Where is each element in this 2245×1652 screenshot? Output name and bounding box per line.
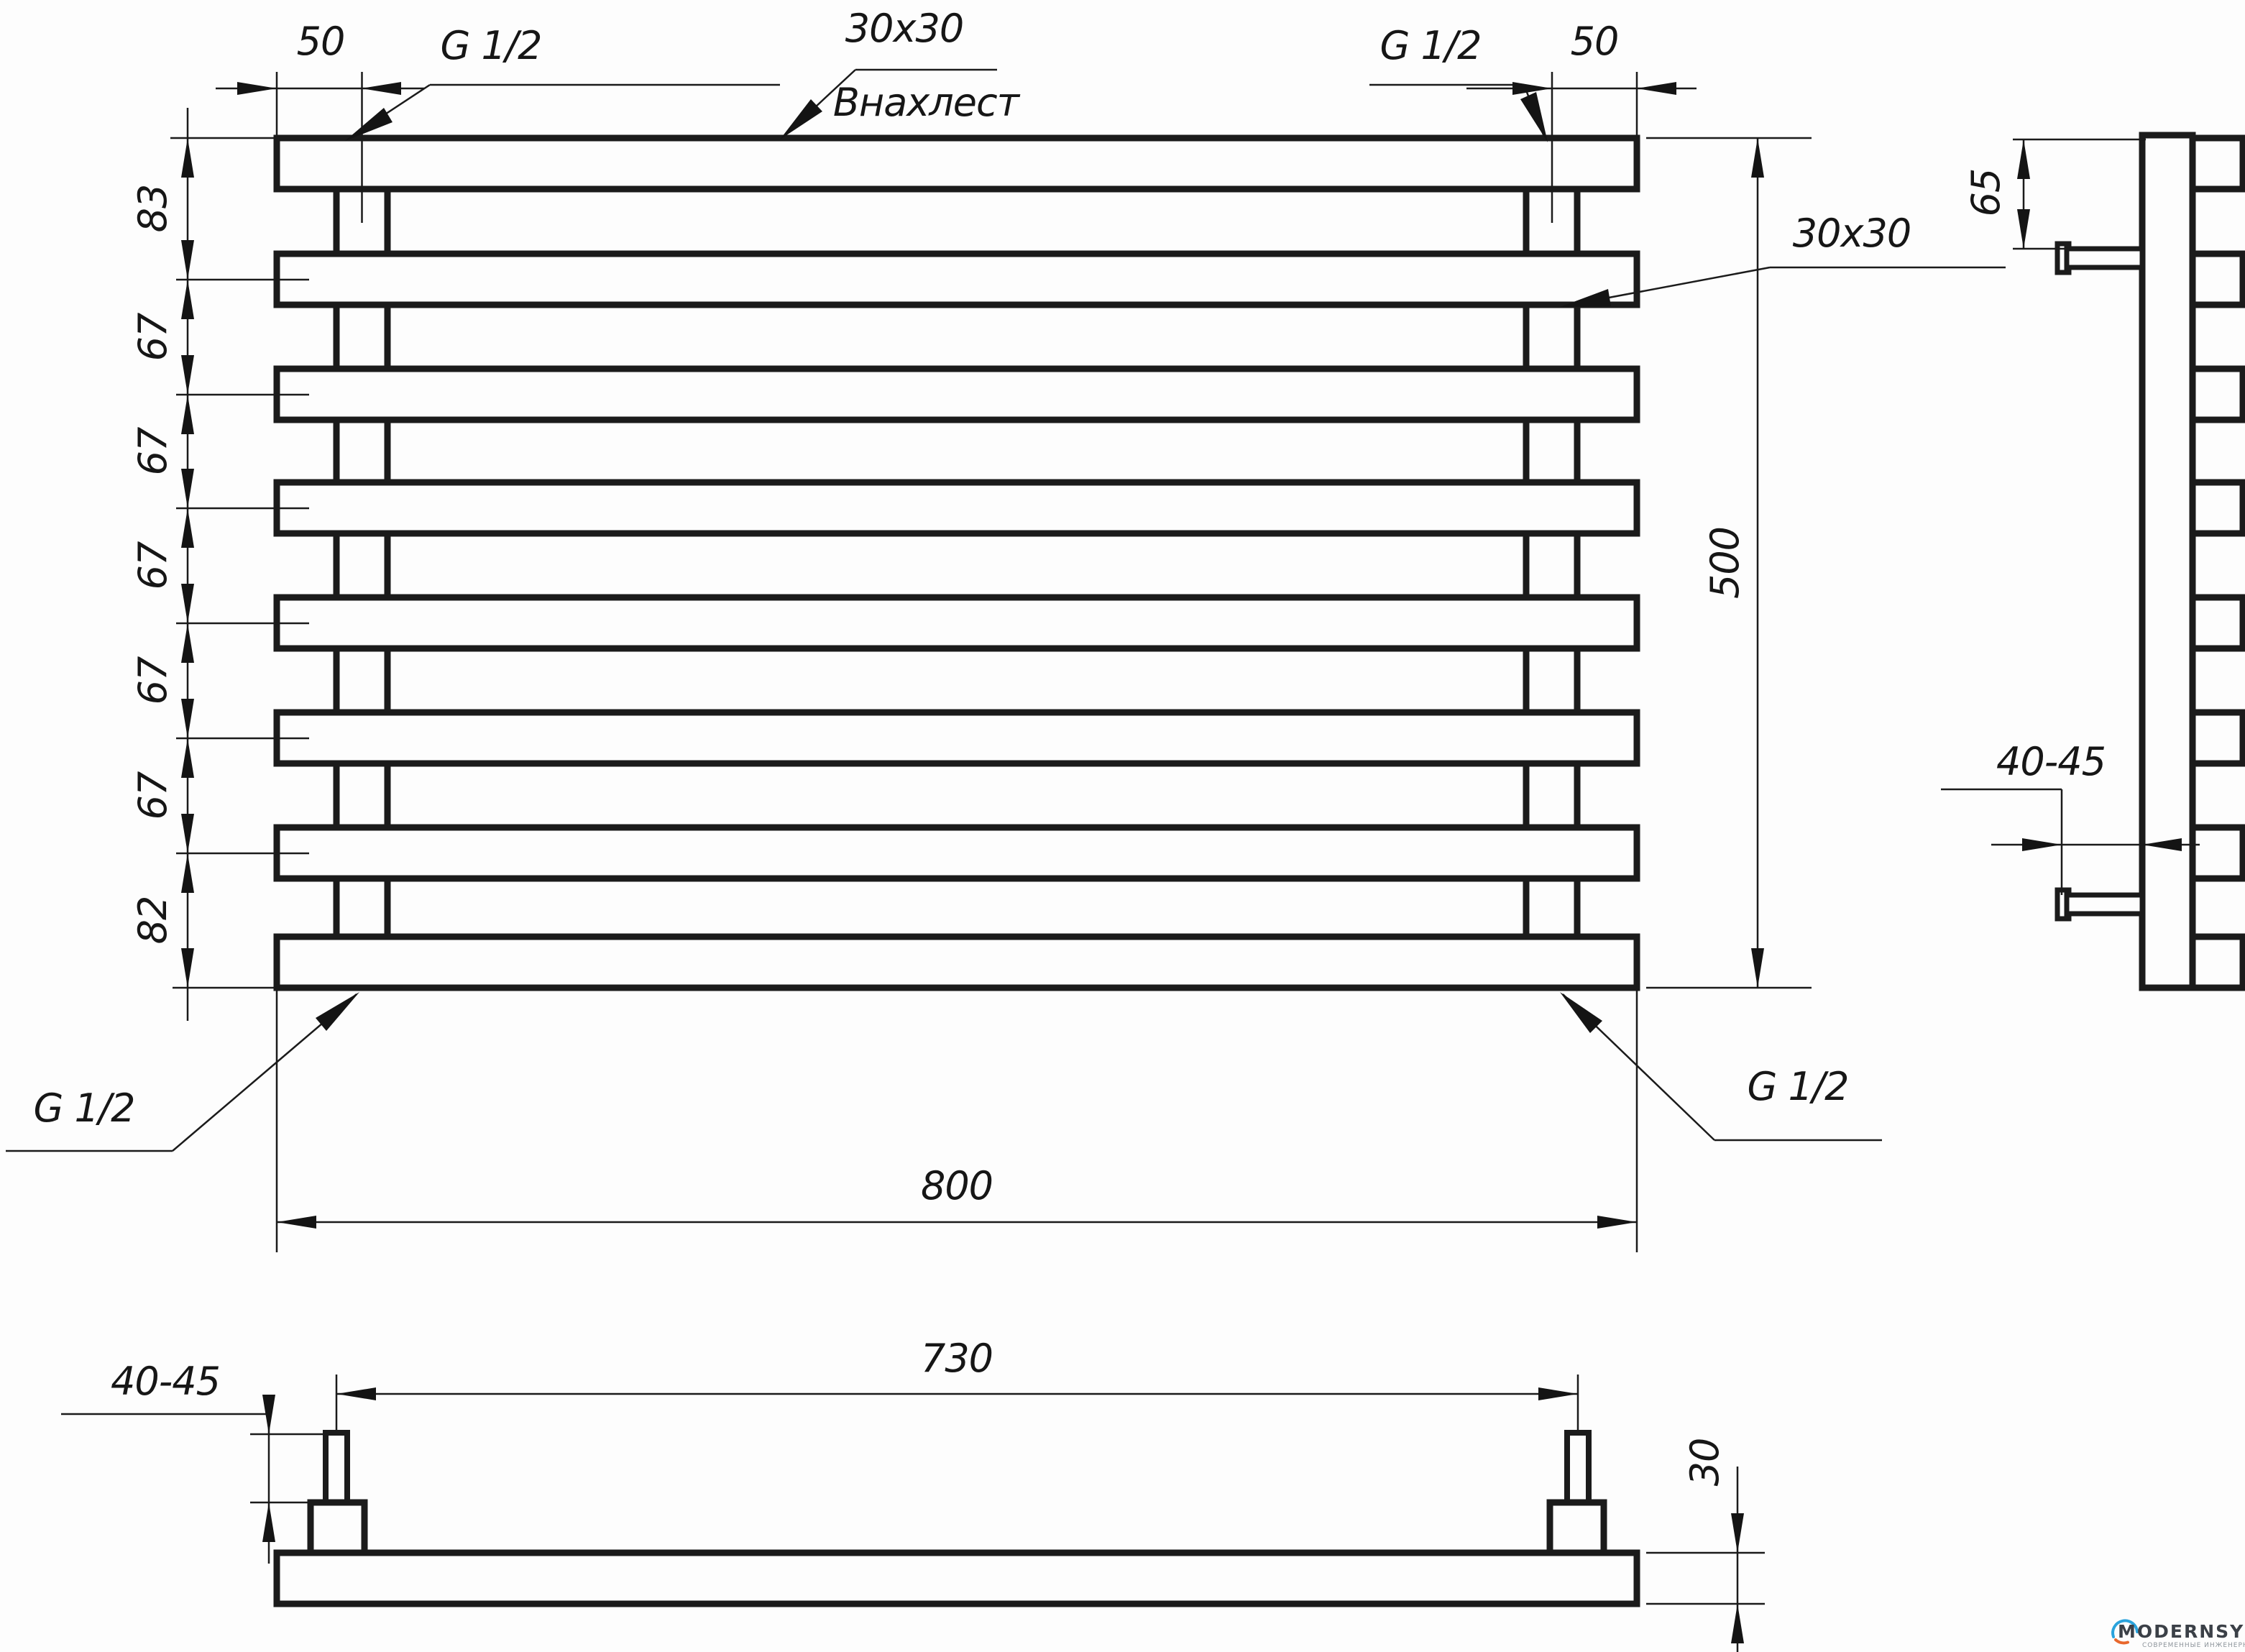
- thread-label-bottom-left: G 1/2: [34, 1089, 135, 1128]
- rungs: [277, 138, 1637, 988]
- side-collector: [2142, 135, 2193, 988]
- dim-row-spacing-3: 67: [134, 428, 173, 476]
- logo-brand-text: MODERNSYS: [2118, 1621, 2245, 1642]
- front-dimension-lines: [6, 70, 2006, 1252]
- dim-total-width: 800: [921, 1167, 993, 1206]
- thread-label-top-left: G 1/2: [441, 27, 542, 65]
- dim-row-spacing-6: 67: [134, 772, 173, 820]
- front-view: [6, 70, 2006, 1252]
- dim-side-top-offset: 65: [1967, 169, 2006, 217]
- bottom-brackets: [311, 1433, 1604, 1553]
- modernsys-logo: MODERNSYS СОВРЕМЕННЫЕ ИНЖЕНЕРНЫЕ СИСТЕМЫ: [2096, 1613, 2245, 1652]
- note-tube-size-top: 30x30: [845, 9, 963, 48]
- bottom-view: [61, 1375, 1765, 1652]
- dim-row-spacing-1: 83: [134, 185, 173, 233]
- side-wall-brackets: [2057, 244, 2142, 919]
- dim-offset-right: 50: [1571, 22, 1619, 61]
- side-rung-stubs: [2193, 138, 2243, 988]
- logo-tagline-text: СОВРЕМЕННЫЕ ИНЖЕНЕРНЫЕ СИСТЕМЫ: [2142, 1642, 2245, 1649]
- dim-total-height: 500: [1706, 527, 1745, 599]
- dim-row-spacing-7: 82: [134, 896, 173, 945]
- note-overlap: Внахлест: [833, 83, 1019, 122]
- bottom-tube: [277, 1553, 1637, 1604]
- dim-bracket-stud-height: 40-45: [111, 1362, 220, 1401]
- dim-row-spacing-2: 67: [134, 313, 173, 362]
- side-view: [1941, 135, 2243, 988]
- dim-tube-depth: 30: [1686, 1438, 1725, 1487]
- dim-row-spacing-4: 67: [134, 542, 173, 590]
- drawing-canvas: 50 G 1/2 30x30 Внахлест G 1/2 50 30x30 8…: [0, 0, 2245, 1652]
- dim-side-wall-clearance: 40-45: [1996, 743, 2106, 781]
- dim-row-spacing-5: 67: [134, 657, 173, 705]
- note-tube-size-right: 30x30: [1793, 214, 1911, 253]
- thread-label-bottom-right: G 1/2: [1748, 1068, 1849, 1106]
- dim-bracket-spacing: 730: [921, 1339, 993, 1378]
- thread-label-top-right: G 1/2: [1380, 27, 1482, 65]
- dim-offset-left: 50: [297, 22, 345, 61]
